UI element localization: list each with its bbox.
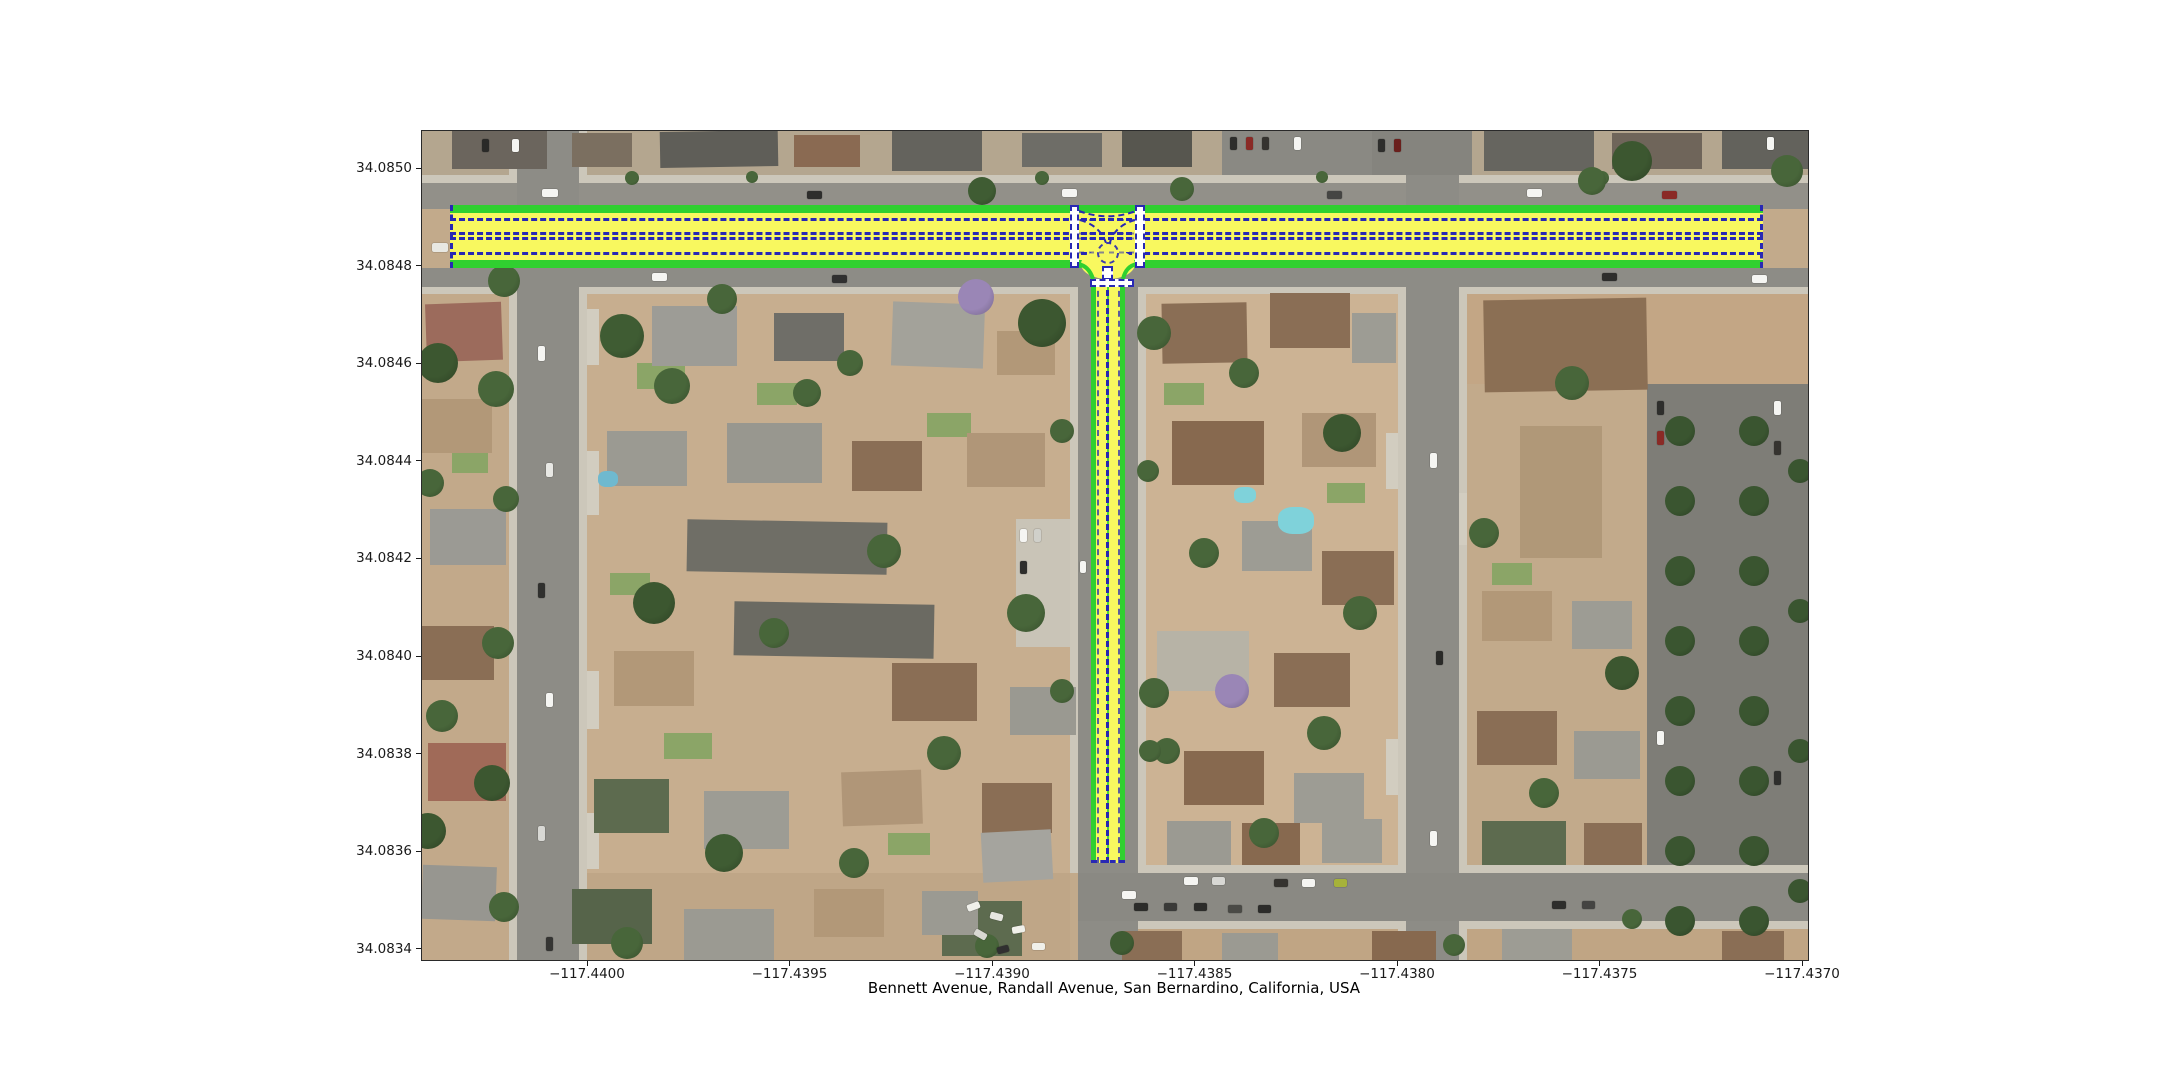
plot-title: Bennett Avenue, Randall Avenue, San Bern… [421, 979, 1807, 997]
x-tick-mark [587, 961, 588, 966]
y-tick-label: 34.0842 [0, 550, 412, 566]
y-tick-mark [416, 460, 421, 461]
x-tick-mark [1194, 961, 1195, 966]
y-tick-label: 34.0844 [0, 453, 412, 469]
y-tick-mark [416, 558, 421, 559]
x-tick-mark [1802, 961, 1803, 966]
x-tick-mark [1397, 961, 1398, 966]
y-tick-label: 34.0840 [0, 648, 412, 664]
y-tick-mark [416, 948, 421, 949]
y-tick-label: 34.0846 [0, 355, 412, 371]
y-tick-mark [416, 265, 421, 266]
crosswalk-south [1090, 279, 1134, 287]
y-tick-mark [416, 656, 421, 657]
y-tick-label: 34.0838 [0, 746, 412, 762]
map-axes [421, 130, 1809, 961]
y-tick-label: 34.0850 [0, 160, 412, 176]
y-tick-mark [416, 753, 421, 754]
y-tick-label: 34.0834 [0, 941, 412, 957]
x-tick-mark [1599, 961, 1600, 966]
y-tick-mark [416, 363, 421, 364]
y-tick-mark [416, 168, 421, 169]
junction-island [1102, 266, 1113, 280]
y-tick-label: 34.0848 [0, 258, 412, 274]
x-tick-mark [992, 961, 993, 966]
crosswalk-west [1070, 205, 1079, 268]
junction-connectors [422, 131, 1808, 960]
crosswalk-east [1135, 205, 1145, 268]
y-tick-mark [416, 851, 421, 852]
y-tick-label: 34.0836 [0, 843, 412, 859]
x-tick-mark [789, 961, 790, 966]
